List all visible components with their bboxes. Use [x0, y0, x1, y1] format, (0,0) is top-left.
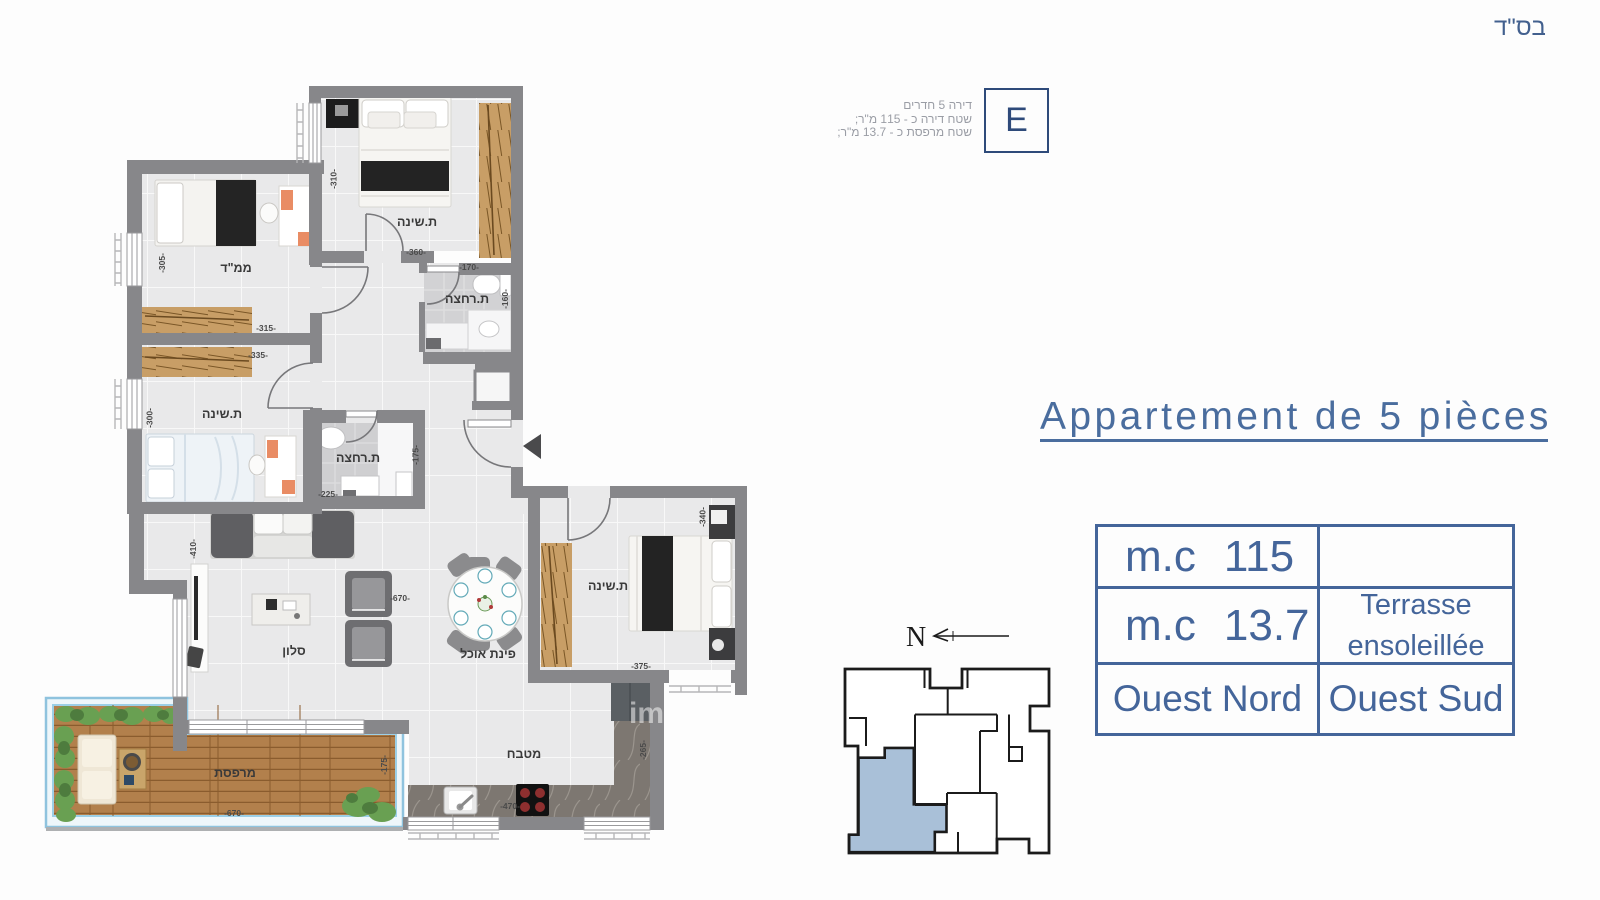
svg-text:-670-: -670-: [224, 808, 244, 818]
svg-text:ת.שינה: ת.שינה: [202, 407, 242, 421]
svg-text:-225-: -225-: [318, 489, 338, 499]
svg-text:-310-: -310-: [329, 169, 339, 189]
svg-text:-670-: -670-: [390, 593, 410, 603]
svg-text:פינת אוכל: פינת אוכל: [460, 647, 516, 661]
svg-text:-175-: -175-: [411, 445, 421, 465]
svg-text:-335-: -335-: [248, 350, 268, 360]
svg-text:-375-: -375-: [631, 661, 651, 671]
svg-text:-360-: -360-: [406, 247, 426, 257]
svg-text:-340-: -340-: [698, 507, 708, 527]
svg-text:ת.רחצה: ת.רחצה: [445, 292, 489, 306]
svg-text:-410-: -410-: [188, 539, 198, 559]
svg-text:-470-: -470-: [500, 801, 520, 811]
svg-text:-170-: -170-: [459, 262, 479, 272]
svg-text:ת.רחצה: ת.רחצה: [336, 451, 380, 465]
svg-text:ת.שינה: ת.שינה: [588, 579, 628, 593]
svg-text:-305-: -305-: [157, 253, 167, 273]
svg-text:N: N: [906, 622, 926, 653]
svg-text:מרפסת: מרפסת: [214, 766, 256, 780]
svg-text:ת.שינה: ת.שינה: [397, 215, 437, 229]
svg-text:-160-: -160-: [500, 289, 510, 309]
svg-text:-300-: -300-: [145, 408, 155, 428]
svg-text:-175-: -175-: [379, 755, 389, 775]
svg-text:ממ"ד: ממ"ד: [220, 261, 251, 275]
svg-text:סלון: סלון: [282, 644, 306, 658]
svg-text:מטבח: מטבח: [507, 747, 541, 761]
svg-text:-265-: -265-: [638, 740, 648, 760]
svg-text:-315-: -315-: [256, 323, 276, 333]
